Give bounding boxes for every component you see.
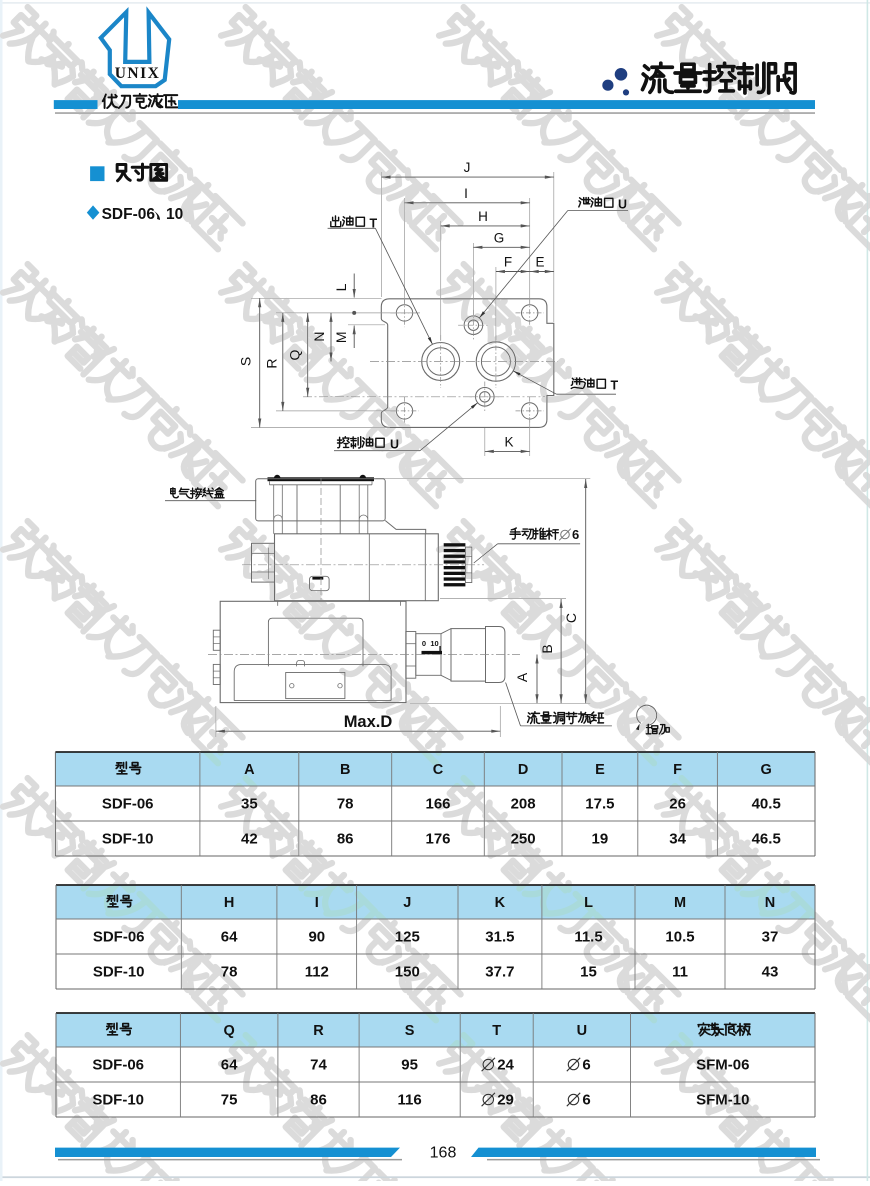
svg-text:95: 95 <box>401 1057 418 1074</box>
svg-text:I: I <box>464 186 468 201</box>
svg-text:86: 86 <box>337 831 354 848</box>
svg-text:Max.D: Max.D <box>344 713 393 731</box>
svg-text:75: 75 <box>221 1092 238 1109</box>
svg-text:S: S <box>405 1023 415 1039</box>
svg-text:6: 6 <box>582 1057 590 1074</box>
svg-text:37.7: 37.7 <box>485 964 514 981</box>
svg-text:SDF-06: SDF-06 <box>102 796 154 813</box>
svg-text:UNIX: UNIX <box>115 65 161 82</box>
svg-text:SDF-10: SDF-10 <box>102 831 154 848</box>
svg-text:SDF-06: SDF-06 <box>102 206 156 223</box>
svg-text:6: 6 <box>572 527 579 542</box>
svg-text:17.5: 17.5 <box>585 796 614 813</box>
svg-text:N: N <box>765 895 775 911</box>
svg-text:116: 116 <box>397 1092 421 1109</box>
svg-text:10: 10 <box>430 639 438 648</box>
svg-text:112: 112 <box>305 964 329 981</box>
svg-text:B: B <box>340 762 350 778</box>
svg-text:10.5: 10.5 <box>665 929 694 946</box>
svg-text:43: 43 <box>762 964 779 981</box>
svg-text:176: 176 <box>425 831 450 848</box>
svg-text:74: 74 <box>310 1057 327 1074</box>
svg-text:0: 0 <box>422 639 426 648</box>
svg-text:78: 78 <box>337 796 354 813</box>
svg-text:H: H <box>478 209 488 224</box>
svg-text:H: H <box>224 895 234 911</box>
svg-text:E: E <box>595 762 605 778</box>
svg-text:U: U <box>577 1023 587 1039</box>
svg-text:S: S <box>238 357 254 366</box>
svg-text:Q: Q <box>223 1023 234 1039</box>
svg-text:J: J <box>403 895 411 911</box>
svg-text:F: F <box>504 255 512 270</box>
svg-text:G: G <box>761 762 772 778</box>
svg-text:168: 168 <box>430 1145 457 1162</box>
svg-text:R: R <box>264 358 280 368</box>
svg-text:46.5: 46.5 <box>752 831 781 848</box>
svg-text:19: 19 <box>592 831 609 848</box>
svg-text:11: 11 <box>672 964 688 981</box>
svg-text:T: T <box>611 378 619 392</box>
svg-text:G: G <box>494 230 505 245</box>
svg-text:E: E <box>535 255 544 270</box>
svg-text:J: J <box>464 160 471 175</box>
svg-text:90: 90 <box>308 929 325 946</box>
svg-text:6: 6 <box>582 1092 590 1109</box>
svg-text:C: C <box>563 613 579 623</box>
svg-text:D: D <box>518 762 528 778</box>
svg-text:10: 10 <box>166 206 183 223</box>
svg-text:L: L <box>333 283 349 291</box>
svg-text:T: T <box>492 1023 501 1039</box>
svg-text:I: I <box>315 895 319 911</box>
svg-text:K: K <box>504 434 513 449</box>
svg-text:40.5: 40.5 <box>752 796 781 813</box>
svg-text:SDF-10: SDF-10 <box>93 964 145 981</box>
svg-text:208: 208 <box>511 796 536 813</box>
svg-text:M: M <box>674 895 686 911</box>
svg-text:A: A <box>514 672 530 682</box>
svg-text:64: 64 <box>221 929 238 946</box>
svg-text:31.5: 31.5 <box>485 929 514 946</box>
svg-text:37: 37 <box>762 929 779 946</box>
svg-text:K: K <box>495 895 506 911</box>
svg-text:M: M <box>333 331 349 343</box>
svg-text:SDF-06: SDF-06 <box>92 1057 144 1074</box>
svg-text:R: R <box>313 1023 324 1039</box>
svg-text:15: 15 <box>580 964 597 981</box>
